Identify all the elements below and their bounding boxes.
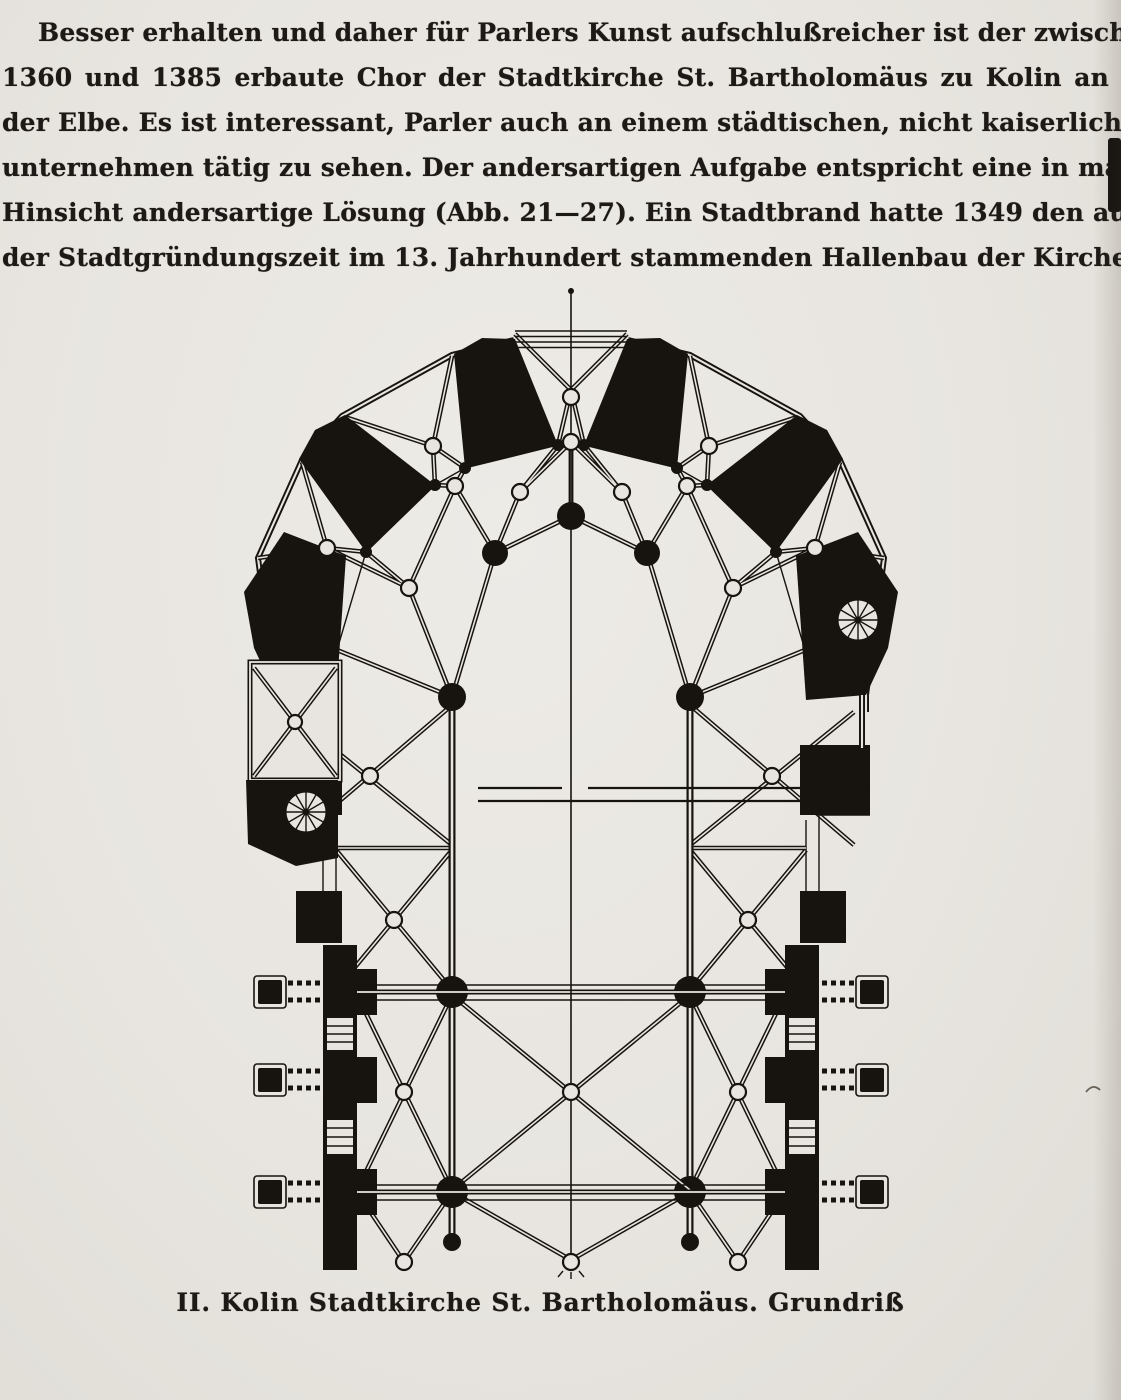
spiral-stair-right [837,599,879,641]
scanned-book-page: Besser erhalten und daher für Parlers Ku… [0,0,1121,1400]
dashed-tie-lines [822,983,854,1200]
church-floor-plan [0,0,1121,1400]
sacristy [246,662,340,866]
figure-caption: II. Kolin Stadtkirche St. Bartholomäus. … [0,1288,1081,1317]
buttress-piers-right [822,976,888,1208]
spiral-stair-left [285,791,327,833]
scan-artifacts [1086,138,1121,1092]
